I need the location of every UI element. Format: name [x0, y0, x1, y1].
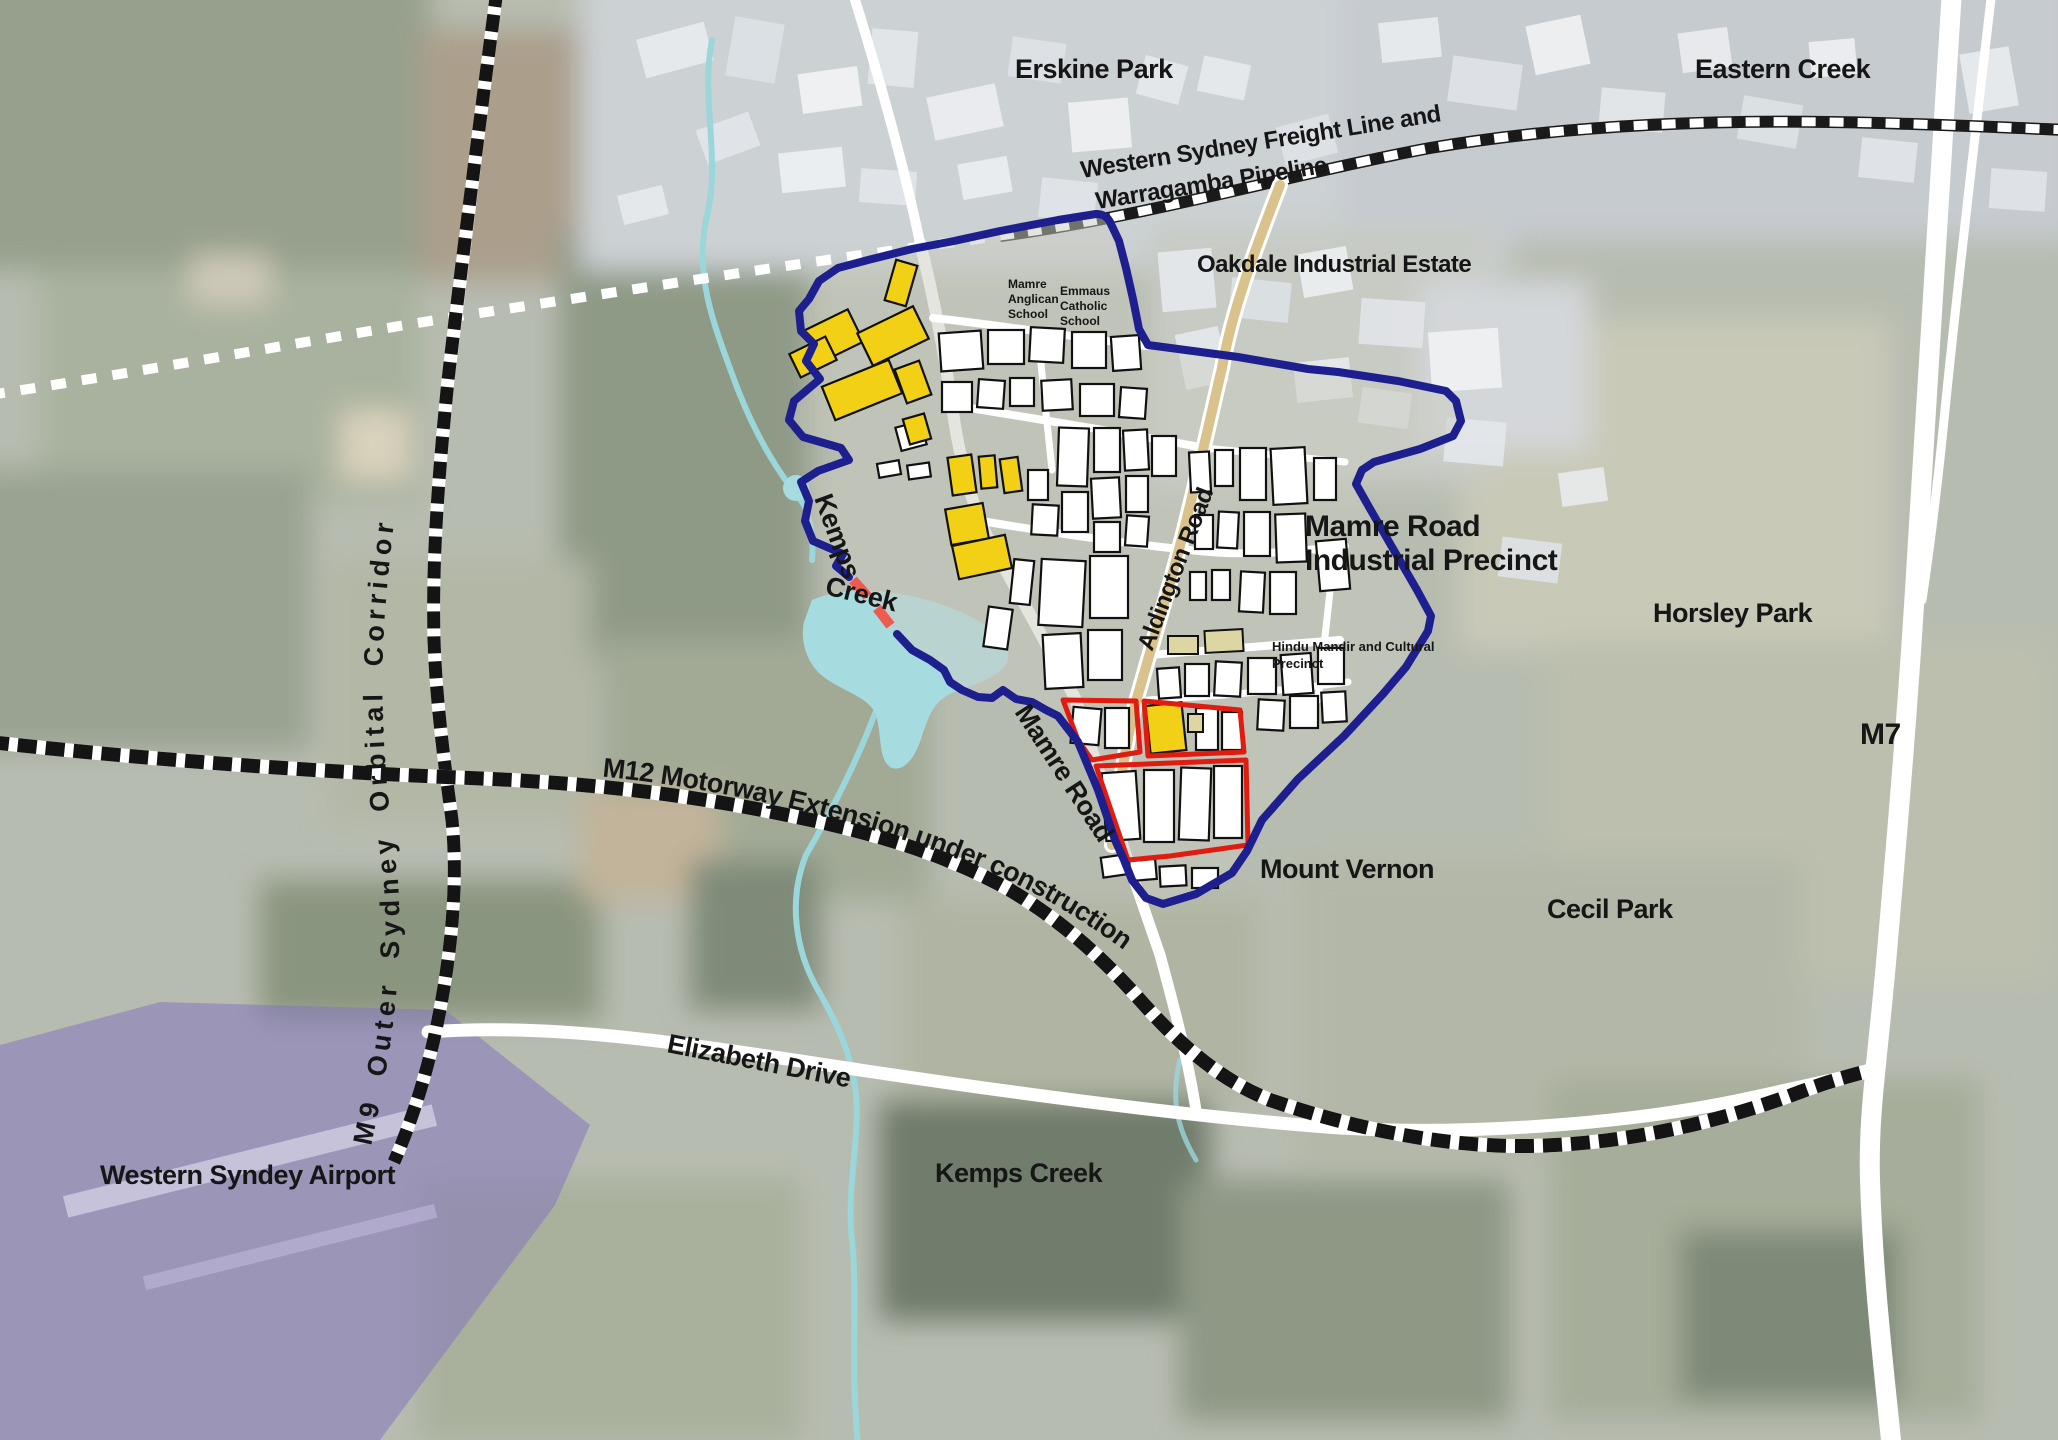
svg-text:Catholic: Catholic	[1060, 299, 1108, 313]
label-erskine-park: Erskine Park	[1015, 54, 1174, 84]
svg-text:Anglican: Anglican	[1008, 292, 1059, 306]
svg-text:Hindu Mandir and Cultural: Hindu Mandir and Cultural	[1272, 639, 1435, 654]
label-cecil-park: Cecil Park	[1547, 894, 1674, 924]
label-eastern-creek: Eastern Creek	[1695, 54, 1872, 84]
label-horsley-park: Horsley Park	[1653, 598, 1814, 628]
svg-text:School: School	[1060, 314, 1100, 328]
label-kemps-creek-suburb: Kemps Creek	[935, 1158, 1104, 1188]
svg-text:School: School	[1008, 307, 1048, 321]
label-mount-vernon: Mount Vernon	[1260, 854, 1434, 884]
svg-text:Mamre: Mamre	[1008, 277, 1047, 291]
svg-text:Industrial Precinct: Industrial Precinct	[1305, 544, 1558, 577]
label-m7: M7	[1860, 718, 1901, 751]
map-canvas: Erskine Park Eastern Creek Western Sydne…	[0, 0, 2058, 1440]
label-western-sydney-airport: Western Syndey Airport	[100, 1160, 396, 1190]
svg-text:Mamre Road: Mamre Road	[1305, 510, 1480, 543]
label-oakdale: Oakdale Industrial Estate	[1197, 251, 1471, 278]
svg-text:Emmaus: Emmaus	[1060, 284, 1110, 298]
svg-text:Precinct: Precinct	[1272, 656, 1324, 671]
